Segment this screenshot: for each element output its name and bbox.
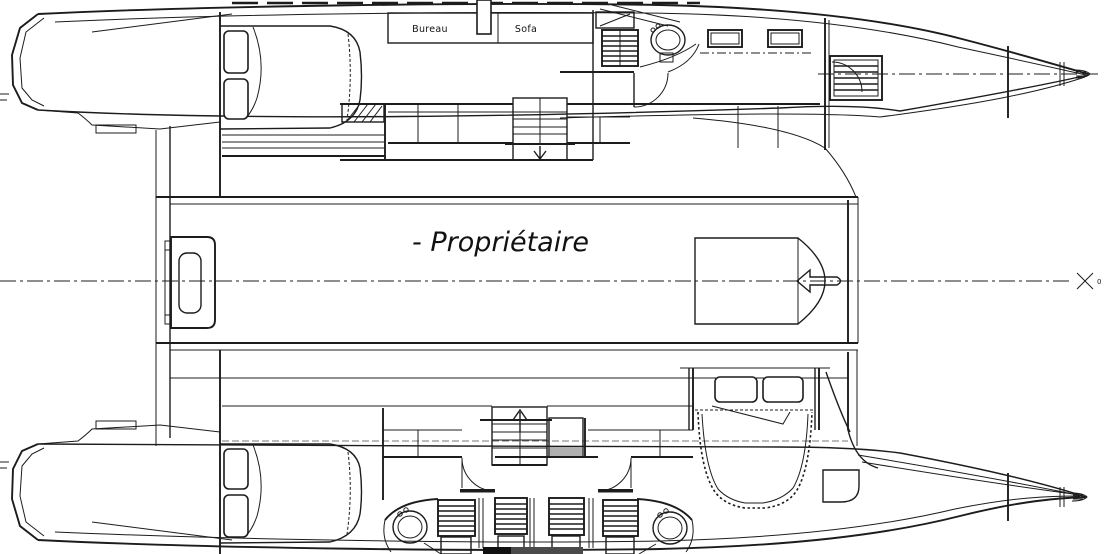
station-zero-label: 0	[1097, 278, 1101, 286]
stairs-down-icon	[505, 98, 575, 160]
starboard-bathrooms	[384, 498, 693, 554]
shower-grating-icon	[549, 498, 584, 535]
forward-bed-icon	[698, 412, 812, 508]
louvered-locker-icon	[830, 56, 882, 100]
station-x-marker-icon	[1077, 273, 1093, 289]
door-swing-icon	[598, 458, 633, 493]
aft-bed-icon	[220, 26, 362, 129]
port-hull-outline	[0, 3, 1098, 133]
starboard-hull-walls	[220, 350, 693, 554]
wc-icon	[651, 24, 685, 62]
shower-grating-icon	[603, 500, 638, 536]
down-arrow-icon	[534, 146, 546, 159]
port-bathroom	[560, 12, 699, 107]
starboard-hull-outline	[0, 378, 1086, 550]
desk-console: Bureau Sofa	[388, 0, 593, 43]
pillow-icon	[224, 495, 248, 537]
aft-bed-icon	[220, 444, 362, 543]
port-foredeck	[693, 18, 1090, 197]
shower-grating-icon	[495, 498, 527, 534]
wc-icon	[393, 508, 441, 554]
desk-label: Bureau	[412, 24, 448, 35]
pillow-icon	[763, 377, 803, 402]
shower-grating-icon	[602, 30, 638, 66]
mast-post	[477, 0, 491, 34]
pillow-icon	[224, 31, 248, 73]
door-swing-icon	[460, 458, 495, 493]
pillow-icon	[224, 79, 248, 119]
sofa-label: Sofa	[515, 24, 537, 35]
stair-landing	[549, 418, 585, 457]
door-swing-icon	[634, 73, 668, 107]
port-hull: Bureau Sofa	[0, 0, 1098, 197]
stern-platform	[165, 237, 215, 328]
wc-icon	[639, 509, 687, 554]
shower-grating-icon	[438, 500, 475, 536]
pillow-icon	[715, 377, 757, 402]
forward-cabin	[680, 368, 850, 508]
pillow-icon	[224, 449, 248, 489]
starboard-hull	[0, 350, 1087, 554]
deck-plan-drawing: 0	[0, 0, 1104, 554]
port-hull-walls	[220, 10, 820, 197]
up-arrow-icon	[513, 410, 527, 432]
deck-plan: 0	[0, 0, 1104, 554]
owner-suite-label: - Propriétaire	[412, 227, 589, 258]
